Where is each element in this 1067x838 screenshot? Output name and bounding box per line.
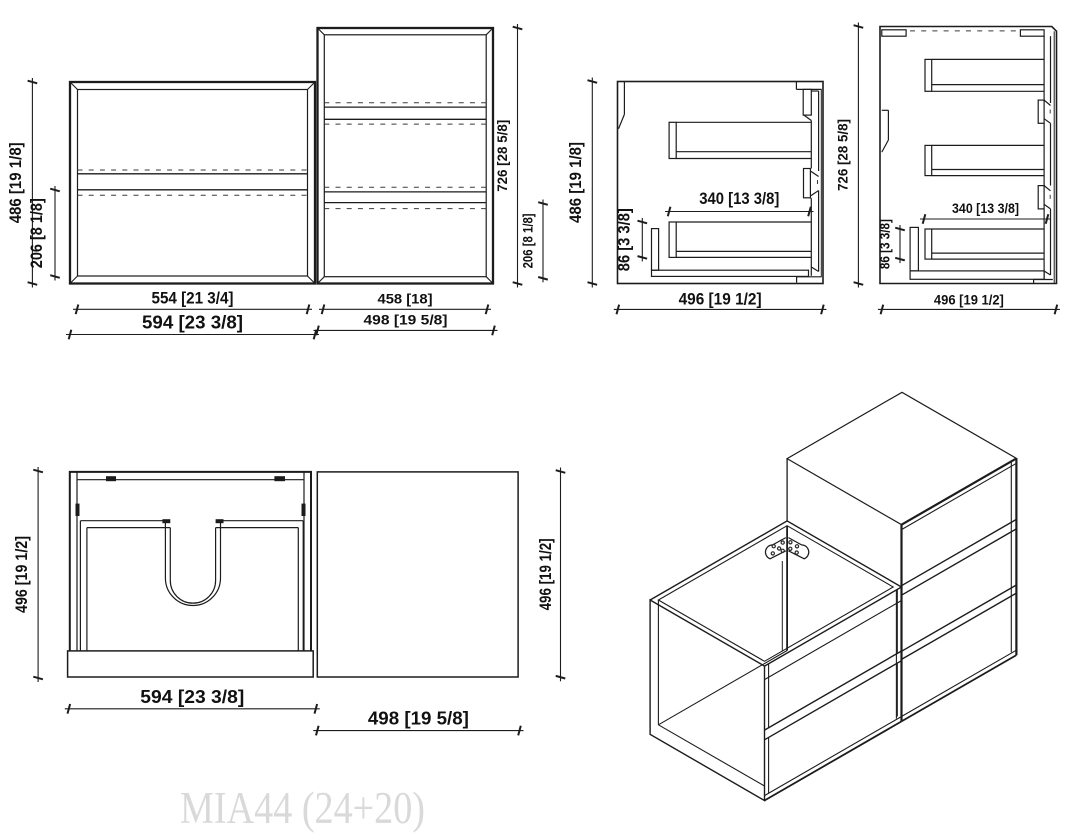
svg-text:498 [19 5/8]: 498 [19 5/8]	[364, 311, 448, 327]
svg-text:554 [21 3/4]: 554 [21 3/4]	[152, 288, 234, 307]
svg-text:486 [19 1/8]: 486 [19 1/8]	[566, 142, 585, 223]
svg-text:496 [19 1/2]: 496 [19 1/2]	[536, 538, 555, 610]
svg-text:340 [13 3/8]: 340 [13 3/8]	[699, 189, 779, 208]
svg-text:86 [3 3/8]: 86 [3 3/8]	[615, 208, 634, 271]
svg-text:594 [23 3/8]: 594 [23 3/8]	[142, 313, 243, 333]
svg-text:340 [13 3/8]: 340 [13 3/8]	[952, 200, 1019, 216]
svg-text:486 [19 1/8]: 486 [19 1/8]	[6, 142, 25, 223]
svg-text:458 [18]: 458 [18]	[378, 290, 433, 306]
svg-text:498 [19 5/8]: 498 [19 5/8]	[368, 709, 469, 729]
svg-text:726 [28 5/8]: 726 [28 5/8]	[835, 119, 851, 191]
svg-text:726 [28 5/8]: 726 [28 5/8]	[494, 120, 510, 192]
svg-text:206 [8 1/8]: 206 [8 1/8]	[520, 213, 536, 268]
svg-text:496 [19 1/2]: 496 [19 1/2]	[679, 289, 762, 308]
svg-text:86 [3 3/8]: 86 [3 3/8]	[877, 219, 893, 269]
svg-text:496 [19 1/2]: 496 [19 1/2]	[12, 536, 31, 613]
svg-text:496 [19 1/2]: 496 [19 1/2]	[934, 292, 1004, 307]
svg-text:206 [8 1/8]: 206 [8 1/8]	[27, 198, 46, 268]
svg-text:594 [23 3/8]: 594 [23 3/8]	[140, 687, 244, 707]
svg-text:MIA44 (24+20): MIA44 (24+20)	[180, 783, 425, 833]
